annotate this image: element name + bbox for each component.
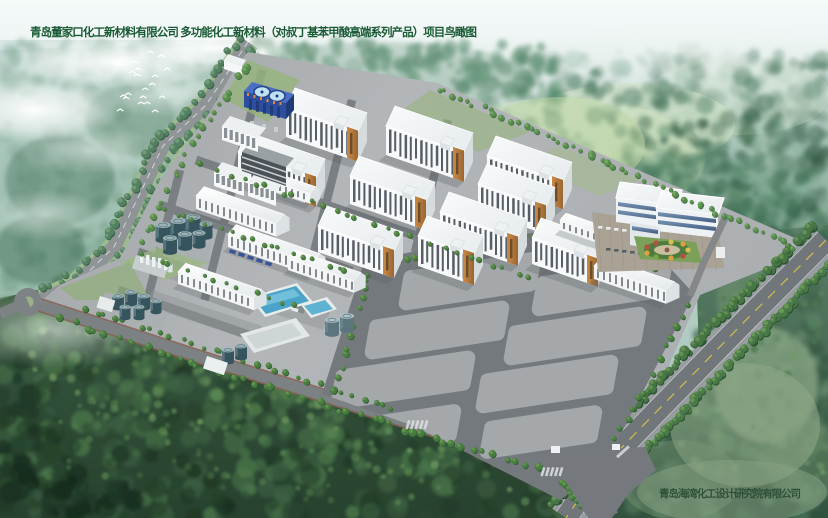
svg-text:青岛海湾化工设计研究院有限公司: 青岛海湾化工设计研究院有限公司: [659, 487, 801, 500]
svg-text:青岛董家口化工新材料有限公司 多功能化工新材料（对叔丁基苯甲: 青岛董家口化工新材料有限公司 多功能化工新材料（对叔丁基苯甲酸高端系列产品）项目…: [30, 25, 477, 39]
